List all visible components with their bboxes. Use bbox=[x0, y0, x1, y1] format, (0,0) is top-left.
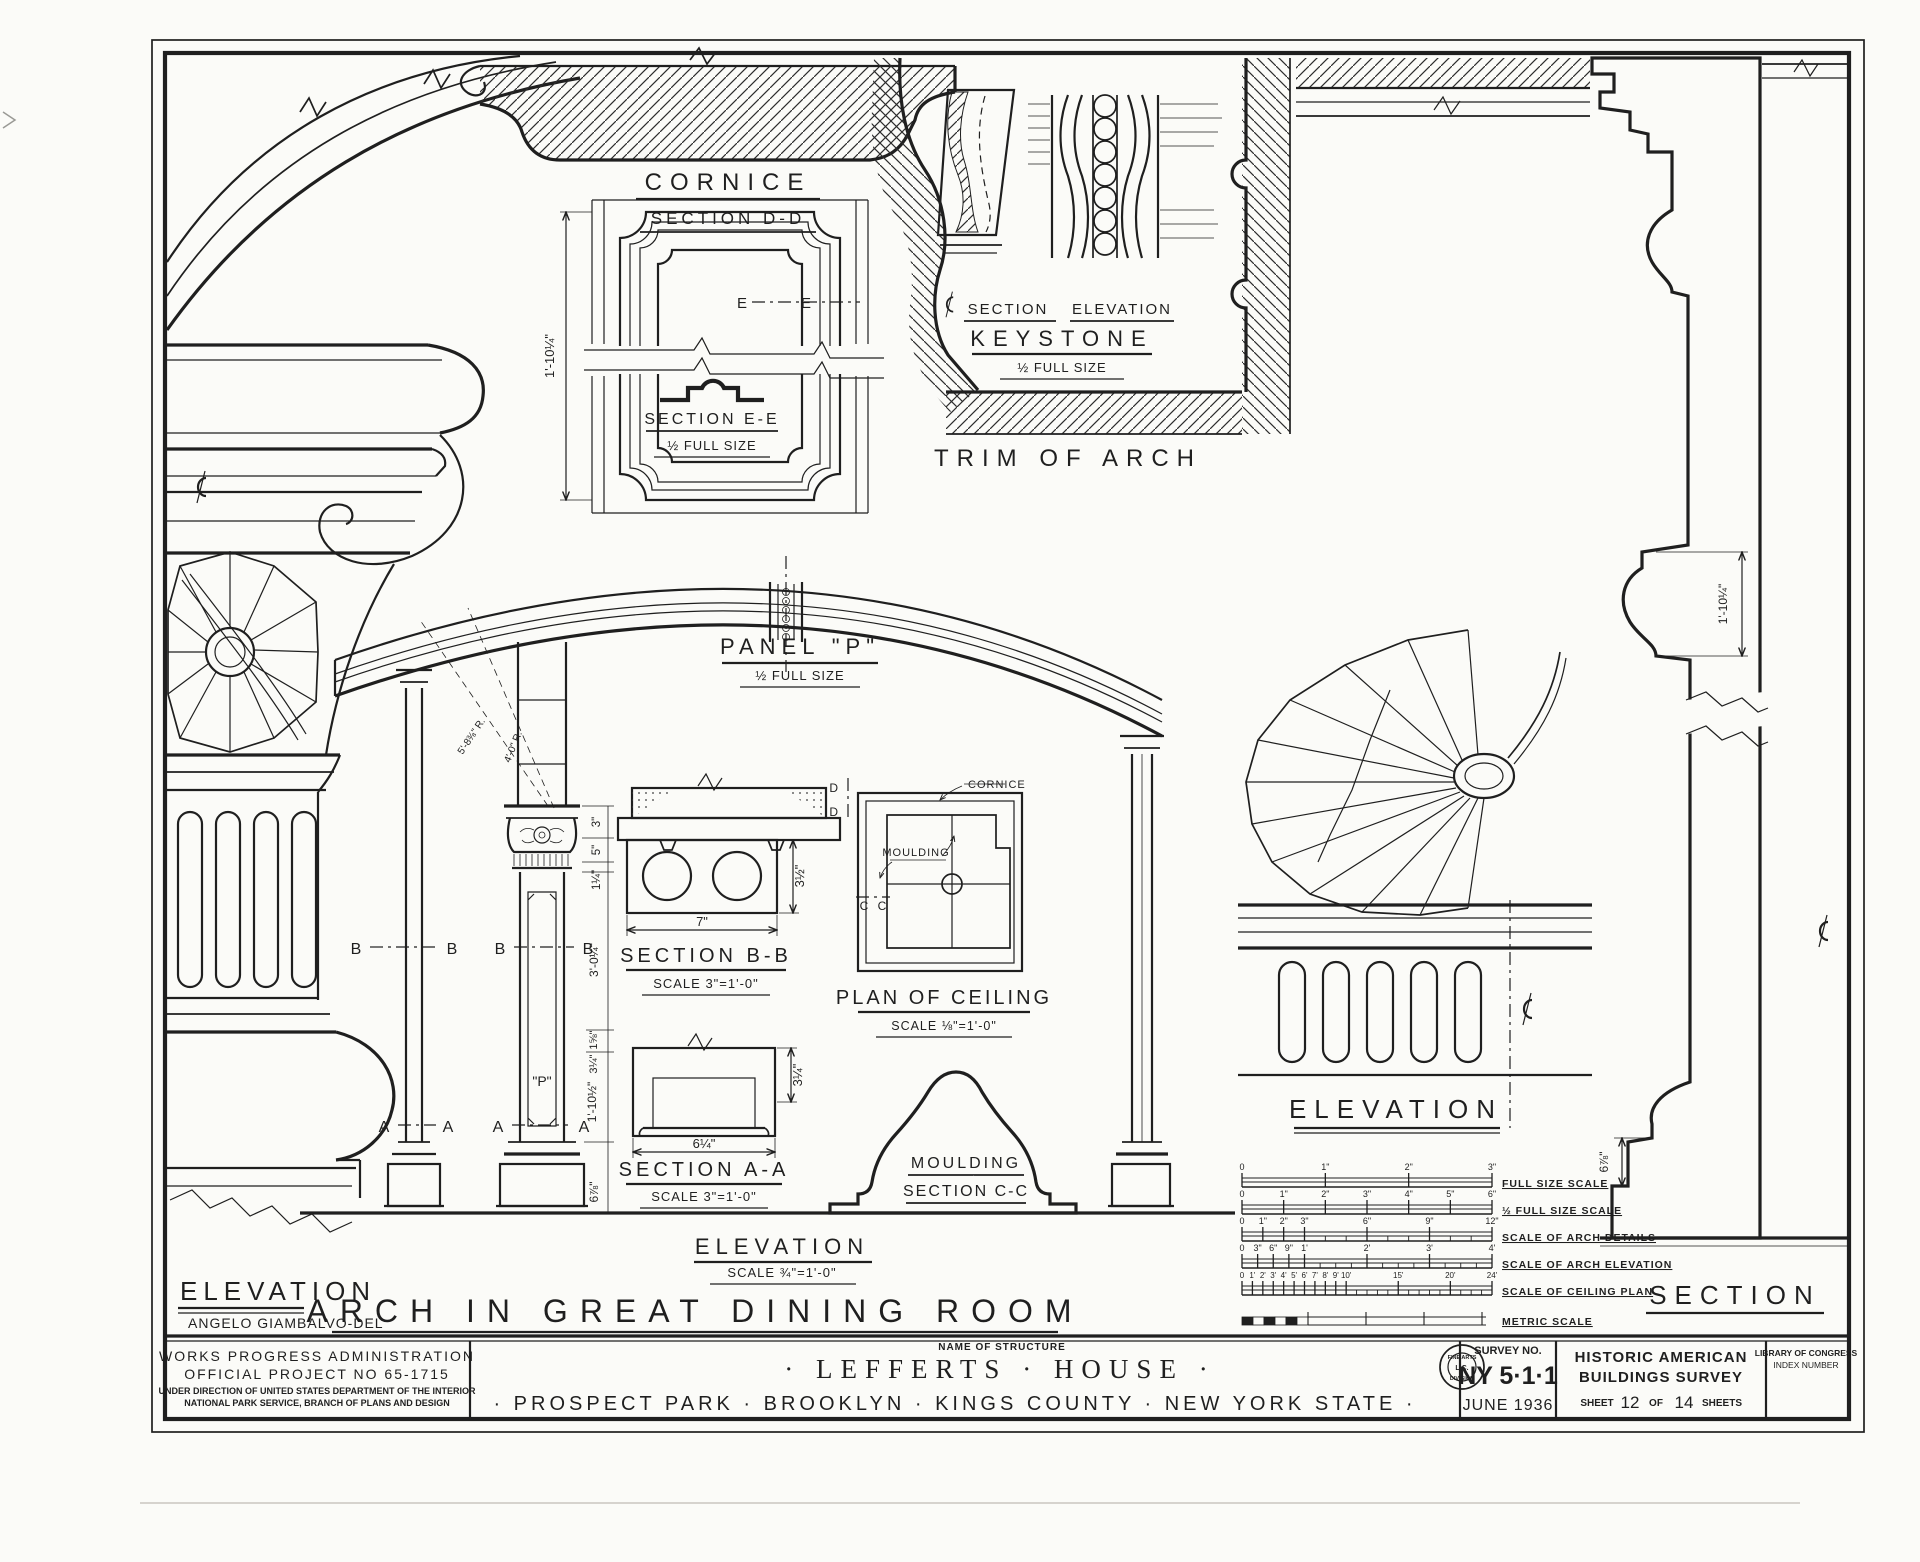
ceiling-plan-scale: SCALE ⅛"=1'-0" bbox=[891, 1019, 997, 1033]
section-aa-scale: SCALE 3"=1'-0" bbox=[651, 1189, 757, 1204]
section-marker-b: B bbox=[351, 941, 362, 958]
section-marker-b: B bbox=[447, 941, 458, 958]
cornice-title: CORNICE bbox=[645, 169, 812, 196]
section-dim-top: 1'-10¼" bbox=[1716, 584, 1730, 625]
scale-bar-mark: 5' bbox=[1291, 1271, 1297, 1280]
scale-bar-mark: 1" bbox=[1259, 1216, 1267, 1226]
dim-height: 3½" bbox=[792, 864, 807, 887]
pilaster-p: "P" bbox=[496, 642, 588, 1213]
scale-bar-mark: 2" bbox=[1405, 1162, 1413, 1172]
scale-bar-mark: 1' bbox=[1249, 1271, 1255, 1280]
trim-of-arch-title: TRIM OF ARCH bbox=[934, 445, 1202, 472]
moulding-cc-title: MOULDING bbox=[911, 1155, 1021, 1172]
scale-bar-mark: 15' bbox=[1393, 1271, 1404, 1280]
frieze-flutes bbox=[178, 792, 318, 1000]
scale-bar-mark: 1" bbox=[1280, 1189, 1288, 1199]
section-bb-scale: SCALE 3"=1'-0" bbox=[653, 976, 759, 991]
scale-bar-mark: 10' bbox=[1341, 1271, 1352, 1280]
structure-location: · PROSPECT PARK · BROOKLYN · KINGS COUNT… bbox=[493, 1393, 1416, 1415]
scan-artifact bbox=[3, 112, 15, 128]
left-column bbox=[384, 670, 444, 1213]
right-column bbox=[1108, 736, 1174, 1213]
panel-p-scale: ½ FULL SIZE bbox=[755, 668, 844, 683]
right-wall-section: 1'-10¼" 6⅞" bbox=[1592, 58, 1847, 1246]
scale-bar-mark bbox=[1286, 1317, 1297, 1325]
scale-bar-label: SCALE OF ARCH ELEVATION bbox=[1502, 1259, 1672, 1271]
scale-bar-mark: 24' bbox=[1487, 1271, 1498, 1280]
centerline-icon bbox=[1819, 915, 1828, 947]
scale-bar-mark: 3" bbox=[1488, 1162, 1496, 1172]
structure-name: · LEFFERTS · HOUSE · bbox=[784, 1354, 1215, 1384]
scale-bar-label: FULL SIZE SCALE bbox=[1502, 1178, 1608, 1190]
scale-bar-mark: 9' bbox=[1333, 1271, 1339, 1280]
scale-bar-label: SCALE OF CEILING PLAN bbox=[1502, 1286, 1653, 1298]
scale-bar-mark: 3' bbox=[1270, 1271, 1276, 1280]
scale-bar-mark: 6" bbox=[1269, 1243, 1277, 1253]
section-marker-b: B bbox=[495, 941, 506, 958]
radius-label: 5'-8⅜" R. bbox=[456, 717, 488, 757]
org-line1: WORKS PROGRESS ADMINISTRATION bbox=[159, 1348, 475, 1364]
scale-bar-mark: 3" bbox=[1300, 1216, 1308, 1226]
survey-no-label: SURVEY NO. bbox=[1474, 1345, 1541, 1357]
scale-bar-mark: 6" bbox=[1488, 1189, 1496, 1199]
centerline-icon bbox=[1523, 993, 1532, 1025]
section-marker-c: C bbox=[860, 899, 869, 913]
section-bb-title: SECTION B-B bbox=[620, 945, 792, 967]
break-mark bbox=[1794, 60, 1818, 76]
keystone-scale: ½ FULL SIZE bbox=[1017, 360, 1106, 375]
scale-bar-mark: 0 bbox=[1239, 1216, 1244, 1226]
fan-detail bbox=[1246, 630, 1566, 915]
dim: 1⅝" bbox=[588, 1030, 600, 1049]
scale-bar-mark bbox=[1297, 1317, 1308, 1325]
centerline-icon bbox=[946, 292, 953, 318]
habs-line1: HISTORIC AMERICAN bbox=[1575, 1349, 1748, 1366]
loc-line1: LIBRARY OF CONGRESS bbox=[1755, 1348, 1858, 1358]
break-mark bbox=[170, 1190, 352, 1232]
cornice-callout: CORNICE bbox=[968, 779, 1026, 791]
scale-bar-mark: 4' bbox=[1489, 1243, 1496, 1253]
org-line2: OFFICIAL PROJECT NO 65-1715 bbox=[184, 1366, 450, 1382]
section-bb-detail: 7" 3½" SECTION B-B SCALE 3"=1'-0" bbox=[618, 774, 840, 995]
ceiling-plan-detail: D D C C CORNICE MOULDING PLAN OF CEILING… bbox=[829, 778, 1052, 1037]
habs-line2: BUILDINGS SURVEY bbox=[1579, 1369, 1743, 1386]
moulding-callout: MOULDING bbox=[882, 847, 949, 859]
scale-bar-mark: 12" bbox=[1485, 1216, 1498, 1226]
scanned-sheet: CORNICE SECTION D-D E E SECTION E-E ½ FU… bbox=[0, 0, 1920, 1562]
break-mark bbox=[300, 98, 326, 116]
radius-label: 4'-0" R. bbox=[502, 730, 524, 764]
moulding-cc-subtitle: SECTION C-C bbox=[903, 1183, 1029, 1200]
scale-bar-mark bbox=[1242, 1317, 1253, 1325]
center-elevation-scale: SCALE ¾"=1'-0" bbox=[727, 1265, 836, 1280]
center-elevation-title: ELEVATION bbox=[695, 1234, 869, 1259]
ceiling-fan-elevation: ELEVATION bbox=[1238, 630, 1592, 1133]
dim: 1¼" bbox=[591, 870, 603, 890]
dim: 6⅞" bbox=[587, 1182, 601, 1203]
section-marker-a: A bbox=[443, 1119, 454, 1136]
scale-bar-label: ½ FULL SIZE SCALE bbox=[1502, 1205, 1622, 1217]
panel-p-title: PANEL "P" bbox=[720, 634, 880, 659]
section-marker-a: A bbox=[493, 1119, 504, 1136]
sheet-word: SHEET bbox=[1580, 1398, 1613, 1409]
title-block: WORKS PROGRESS ADMINISTRATION OFFICIAL P… bbox=[159, 1336, 1858, 1419]
scale-bar-mark: 3" bbox=[1363, 1189, 1371, 1199]
scale-bar-mark: 20' bbox=[1445, 1271, 1456, 1280]
scale-bar-mark bbox=[1275, 1317, 1286, 1325]
trim-of-arch: TRIM OF ARCH bbox=[872, 58, 1590, 472]
sheet-number: 12 bbox=[1621, 1393, 1640, 1412]
scale-bar-mark: 2' bbox=[1364, 1243, 1371, 1253]
dim-height: 3¼" bbox=[790, 1063, 805, 1086]
dim: 1'-10½" bbox=[585, 1082, 599, 1123]
org-line4: NATIONAL PARK SERVICE, BRANCH OF PLANS A… bbox=[184, 1398, 450, 1408]
main-title: ARCH IN GREAT DINING ROOM bbox=[306, 1293, 1083, 1329]
break-mark bbox=[690, 48, 716, 64]
stamp-bottom: DIVISION bbox=[1450, 1376, 1474, 1382]
scale-bar-label: METRIC SCALE bbox=[1502, 1316, 1593, 1328]
sheets-word: SHEETS bbox=[1702, 1398, 1742, 1409]
scale-bar-mark: 9" bbox=[1425, 1216, 1433, 1226]
scale-bar-mark: 4' bbox=[1281, 1271, 1287, 1280]
scale-bars: 01"2"3"01"2"3"4"5"6"01"2"3"6"9"12"03"6"9… bbox=[1239, 1162, 1672, 1328]
scale-bar-mark: 4" bbox=[1405, 1189, 1413, 1199]
scale-bar-mark: 9" bbox=[1285, 1243, 1293, 1253]
section-marker-a: A bbox=[379, 1119, 390, 1136]
scale-bar-mark: 0 bbox=[1240, 1271, 1245, 1280]
structure-label: NAME OF STRUCTURE bbox=[938, 1342, 1066, 1353]
section-ee-title: SECTION E-E bbox=[644, 411, 779, 428]
scale-bar-mark: 2' bbox=[1260, 1271, 1266, 1280]
panel-letter: "P" bbox=[532, 1073, 551, 1089]
frieze-flutes bbox=[1279, 962, 1481, 1062]
moulding-section-cc: MOULDING SECTION C-C bbox=[830, 1072, 1076, 1213]
scale-bar-mark: 0 bbox=[1239, 1162, 1244, 1172]
dim: 3'-0¼" bbox=[587, 943, 601, 977]
break-mark bbox=[1434, 97, 1460, 114]
section-marker-d: D bbox=[829, 781, 838, 795]
right-elevation-title: ELEVATION bbox=[1289, 1094, 1503, 1124]
scale-bar-mark: 2" bbox=[1321, 1189, 1329, 1199]
keystone-title: KEYSTONE bbox=[970, 326, 1153, 351]
keystone-section-label: SECTION bbox=[968, 301, 1049, 318]
scale-bar-mark bbox=[1264, 1317, 1275, 1325]
right-section-title: SECTION bbox=[1649, 1280, 1821, 1310]
profile-glyph bbox=[660, 381, 764, 400]
survey-date: JUNE 1936 bbox=[1463, 1397, 1554, 1414]
of-word: OF bbox=[1649, 1398, 1663, 1409]
panel-height-dim: 1'-10¼" bbox=[542, 334, 557, 378]
stamp-top: FINE ARTS bbox=[1448, 1355, 1477, 1361]
scale-bar-mark bbox=[1253, 1317, 1264, 1325]
scale-bar-mark: 6" bbox=[1363, 1216, 1371, 1226]
keystone-elevation-label: ELEVATION bbox=[1072, 301, 1172, 318]
scale-bar-mark: 0 bbox=[1239, 1189, 1244, 1199]
loc-line2: INDEX NUMBER bbox=[1773, 1360, 1838, 1370]
scale-bar-mark: 7' bbox=[1312, 1271, 1318, 1280]
dim-width: 7" bbox=[696, 914, 708, 929]
dim: 3¼" bbox=[588, 1054, 600, 1073]
section-dim-bottom: 6⅞" bbox=[1597, 1152, 1611, 1173]
fan-medallion bbox=[168, 552, 318, 752]
section-aa-detail: 6¼" 3¼" SECTION A-A SCALE 3"=1'-0" bbox=[619, 1034, 805, 1208]
section-marker-c: C bbox=[878, 899, 887, 913]
scale-bar-mark: 0 bbox=[1239, 1243, 1244, 1253]
section-marker-e: E bbox=[737, 295, 747, 312]
dim-width: 6¼" bbox=[693, 1136, 716, 1151]
keystone-detail: SECTION ELEVATION KEYSTONE ½ FULL SIZE bbox=[938, 90, 1222, 379]
scale-bar-mark: 8' bbox=[1322, 1271, 1328, 1280]
drawing-sheet: CORNICE SECTION D-D E E SECTION E-E ½ FU… bbox=[0, 0, 1920, 1562]
ceiling-plan-title: PLAN OF CEILING bbox=[836, 987, 1052, 1009]
section-marker-e: E bbox=[801, 295, 811, 312]
section-marker-d: D bbox=[829, 805, 838, 819]
section-aa-title: SECTION A-A bbox=[619, 1159, 790, 1181]
section-ee-scale: ½ FULL SIZE bbox=[667, 438, 756, 453]
stamp-mid: L.C. bbox=[1455, 1365, 1468, 1372]
keystone-elevation-drawing bbox=[1028, 95, 1222, 258]
scale-bar-mark: 3" bbox=[1254, 1243, 1262, 1253]
scale-bar-mark: 5" bbox=[1446, 1189, 1454, 1199]
dim: 3" bbox=[591, 817, 603, 827]
scale-bar-mark: 3' bbox=[1426, 1243, 1433, 1253]
scale-bar-mark: 2" bbox=[1280, 1216, 1288, 1226]
scale-bar-mark: 1" bbox=[1321, 1162, 1329, 1172]
scale-bar-label: SCALE OF ARCH DETAILS bbox=[1502, 1232, 1656, 1244]
panel-p-detail: E E SECTION E-E ½ FULL SIZE 1'-10¼" PANE… bbox=[542, 200, 884, 687]
org-line3: UNDER DIRECTION OF UNITED STATES DEPARTM… bbox=[159, 1386, 477, 1396]
scale-bar-mark: 6' bbox=[1302, 1271, 1308, 1280]
dim: 5" bbox=[591, 845, 603, 855]
sheet-total: 14 bbox=[1675, 1393, 1694, 1412]
scale-bar-mark: 1' bbox=[1301, 1243, 1308, 1253]
